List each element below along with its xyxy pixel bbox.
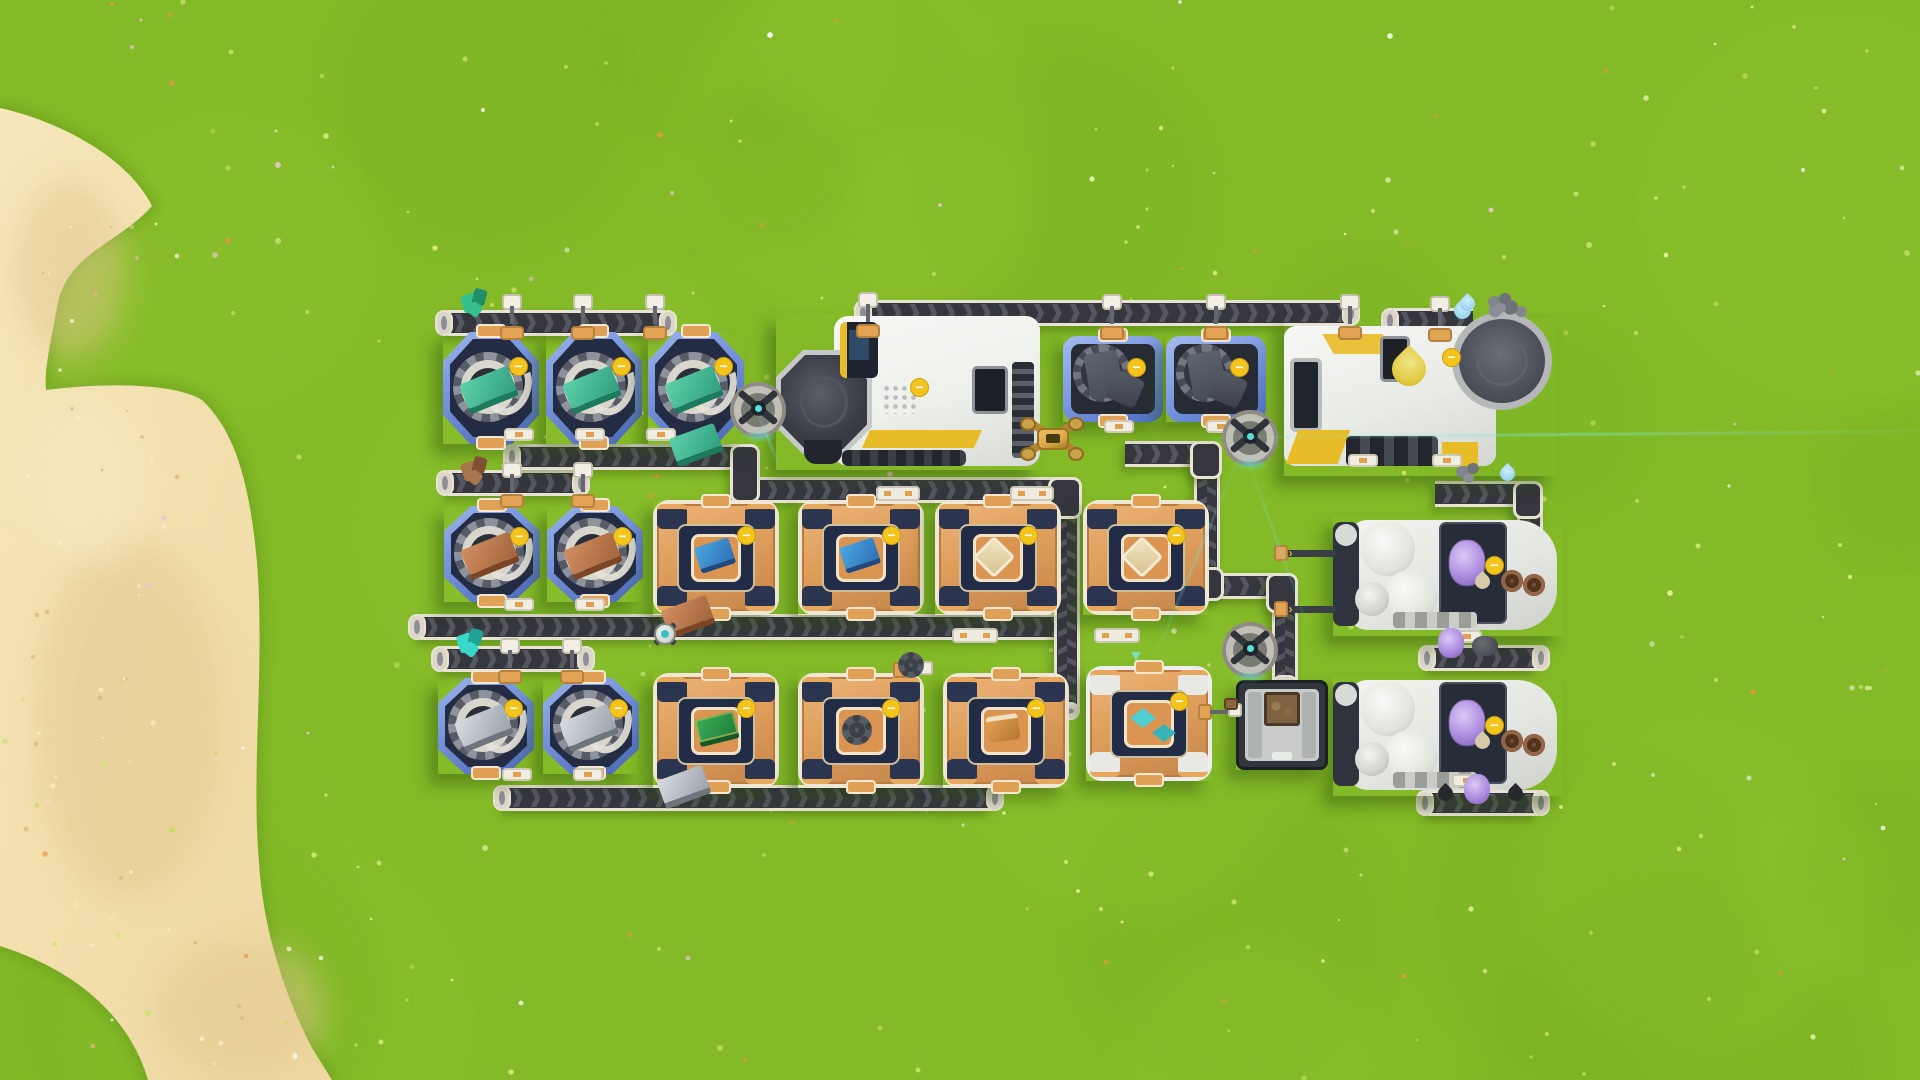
assembler[interactable]: − [653, 673, 779, 788]
status-badge: − [737, 526, 756, 545]
open-slot [1264, 692, 1300, 726]
belt-corner[interactable] [730, 444, 760, 503]
claw [804, 440, 842, 464]
tank [1361, 522, 1415, 576]
status-badge: − [1019, 526, 1038, 545]
conveyor-belt[interactable] [505, 785, 992, 811]
inserter[interactable] [500, 294, 524, 340]
oil-refinery[interactable]: − [1284, 318, 1556, 476]
inserter[interactable] [1428, 296, 1452, 342]
belt-end-cap [493, 785, 511, 811]
belt-end-cap [408, 614, 426, 640]
inserter[interactable] [571, 462, 595, 508]
inserter[interactable] [1100, 294, 1124, 340]
inserter[interactable] [1338, 294, 1362, 340]
belt-corner[interactable] [1190, 441, 1222, 479]
barrel [1501, 570, 1523, 592]
smelter[interactable]: − [438, 678, 534, 774]
connector-pad [502, 768, 532, 781]
smelter[interactable]: − [543, 678, 639, 774]
storage-container[interactable] [1236, 680, 1328, 770]
chemical-plant[interactable]: − [1333, 676, 1563, 796]
cargo-slot [972, 366, 1008, 414]
status-badge: − [882, 526, 901, 545]
status-badge: − [1027, 699, 1046, 718]
smelter[interactable]: − [547, 506, 643, 602]
tank [1361, 682, 1415, 736]
loader-pad [1010, 486, 1054, 501]
barrel [1523, 574, 1545, 596]
barrel [1523, 734, 1545, 756]
game-world: − − − − − − − [0, 0, 1920, 1080]
status-badge: − [882, 699, 901, 718]
chemical-plant[interactable]: − [1333, 516, 1563, 636]
side-slot [1290, 358, 1322, 432]
status-badge: − [1485, 556, 1504, 575]
treads [842, 450, 966, 466]
inserter[interactable] [856, 292, 880, 338]
utility-bot[interactable] [648, 618, 682, 652]
assembler[interactable]: − [653, 500, 779, 615]
inserter[interactable] [498, 638, 522, 684]
loader-pad [1094, 628, 1140, 643]
assembler[interactable]: − [1083, 500, 1209, 615]
inserter[interactable] [500, 462, 524, 508]
ore-crusher[interactable]: − [1063, 336, 1163, 422]
barrel [1501, 730, 1523, 752]
connector-pad [575, 598, 605, 611]
tank [1355, 742, 1389, 776]
tank [1355, 582, 1389, 616]
status-badge: − [737, 699, 756, 718]
belt-end-cap [1532, 645, 1550, 671]
status-badge: − [1230, 358, 1249, 377]
feed-arm: › › [1278, 606, 1336, 613]
connector-pad [575, 428, 605, 441]
assembler[interactable]: − [798, 673, 924, 788]
status-badge: − [1442, 348, 1461, 367]
drone-pad[interactable] [1222, 622, 1280, 686]
assembler[interactable]: − [935, 500, 1061, 615]
status-badge: − [714, 357, 733, 376]
inserter[interactable] [643, 294, 667, 340]
status-badge: − [1485, 716, 1504, 735]
status-badge: − [910, 378, 929, 397]
feed-arm: › › [1278, 550, 1336, 557]
assembler[interactable]: − [798, 500, 924, 615]
status-badge: − [509, 357, 528, 376]
belt-end-cap [436, 470, 454, 496]
cargo-drone[interactable] [1020, 415, 1086, 463]
belt-end-cap [431, 646, 449, 672]
connector-pad [504, 598, 534, 611]
flow-arrow: ▼ [1128, 648, 1144, 666]
status-badge: − [1127, 358, 1146, 377]
loader-pad [952, 628, 998, 643]
status-badge: − [1167, 526, 1186, 545]
inserter[interactable] [560, 638, 584, 684]
conveyor-belt[interactable] [1435, 481, 1523, 507]
assembler[interactable]: − [1086, 666, 1212, 781]
status-badge: − [1170, 692, 1189, 711]
conveyor-belt[interactable] [1125, 441, 1197, 467]
belt-end-cap [1418, 645, 1436, 671]
drone-hub[interactable]: − [776, 314, 1040, 470]
status-badge: − [612, 357, 631, 376]
loader-pad [876, 486, 920, 501]
connector-pad [1104, 420, 1134, 433]
connector-pad [504, 428, 534, 441]
inserter[interactable] [1204, 294, 1228, 340]
smelter[interactable]: − [444, 506, 540, 602]
belt-corner[interactable] [1513, 481, 1543, 519]
inserter[interactable] [571, 294, 595, 340]
connector-pad [573, 768, 603, 781]
assembler[interactable]: − [943, 673, 1069, 788]
